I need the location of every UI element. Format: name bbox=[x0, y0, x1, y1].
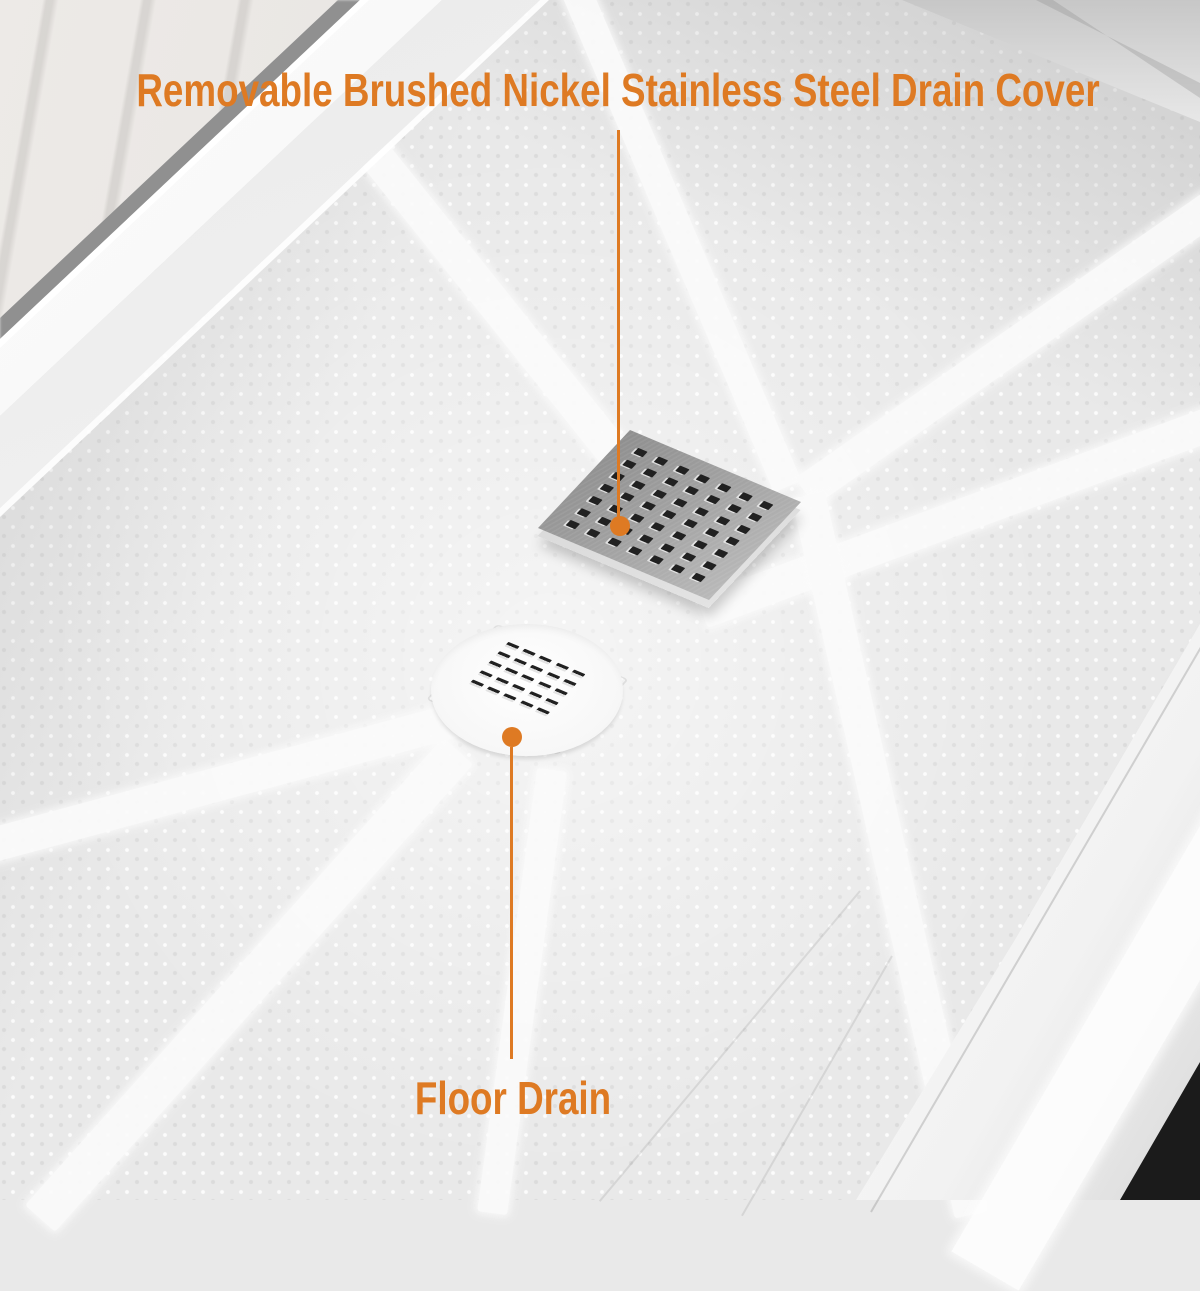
drain-hole bbox=[528, 665, 543, 674]
drain-hole bbox=[512, 658, 527, 667]
drain-hole bbox=[748, 513, 762, 522]
drain-hole bbox=[545, 672, 560, 681]
drain-hole bbox=[662, 510, 676, 519]
drain-hole bbox=[643, 469, 657, 478]
drain-hole bbox=[620, 493, 634, 502]
drain-hole bbox=[586, 529, 600, 538]
drain-hole bbox=[503, 668, 518, 677]
drain-hole bbox=[521, 649, 536, 658]
drain-hole bbox=[565, 520, 579, 529]
drain-hole bbox=[496, 651, 511, 660]
drain-hole bbox=[607, 538, 621, 547]
drain-hole bbox=[552, 688, 567, 697]
drain-hole bbox=[696, 474, 710, 483]
drain-cover-callout-label: Removable Brushed Nickel Stainless Steel… bbox=[136, 64, 1099, 117]
drain-hole bbox=[683, 519, 697, 528]
drain-hole bbox=[759, 501, 773, 510]
drain-hole bbox=[520, 675, 535, 684]
drain-hole bbox=[630, 514, 644, 523]
drain-hole bbox=[725, 537, 739, 546]
drain-hole bbox=[536, 681, 551, 690]
floor-drain-callout-dot bbox=[502, 727, 522, 747]
drain-cover-callout-dot bbox=[610, 516, 630, 536]
drain-hole bbox=[633, 448, 647, 457]
drain-hole bbox=[561, 679, 576, 688]
product-image: { "annotations": { "drain_cover_label": … bbox=[0, 0, 1200, 1200]
drain-hole bbox=[675, 465, 689, 474]
drain-cover-callout-line bbox=[617, 130, 620, 520]
drain-hole bbox=[577, 508, 591, 517]
drain-hole bbox=[695, 507, 709, 516]
drain-hole bbox=[502, 693, 517, 702]
drain-hole bbox=[727, 504, 741, 513]
drain-hole bbox=[588, 496, 602, 505]
drain-hole bbox=[504, 642, 519, 651]
drain-hole bbox=[685, 486, 699, 495]
drain-hole bbox=[649, 555, 663, 564]
drain-hole bbox=[654, 457, 668, 466]
drain-hole bbox=[704, 528, 718, 537]
drain-hole bbox=[544, 698, 559, 707]
drain-hole bbox=[641, 501, 655, 510]
drain-hole bbox=[737, 525, 751, 534]
drain-hole bbox=[494, 677, 509, 686]
drain-hole bbox=[716, 516, 730, 525]
drain-hole bbox=[535, 707, 550, 716]
drain-hole bbox=[599, 484, 613, 493]
drain-hole bbox=[651, 522, 665, 531]
drain-hole bbox=[670, 564, 684, 573]
drain-hole bbox=[511, 684, 526, 693]
drain-hole bbox=[570, 670, 585, 679]
drain-hole bbox=[487, 661, 502, 670]
drain-hole bbox=[622, 460, 636, 469]
drain-hole bbox=[632, 481, 646, 490]
drain-hole bbox=[518, 700, 533, 709]
drain-hole bbox=[682, 552, 696, 561]
drain-hole bbox=[527, 691, 542, 700]
drain-hole bbox=[738, 492, 752, 501]
drain-hole bbox=[714, 549, 728, 558]
drain-hole bbox=[653, 489, 667, 498]
drain-hole bbox=[537, 656, 552, 665]
drain-hole bbox=[469, 680, 484, 689]
floor-drain-callout-label: Floor Drain bbox=[415, 1072, 611, 1125]
drain-hole bbox=[693, 540, 707, 549]
floor-drain-callout-line bbox=[510, 747, 513, 1059]
drain-hole bbox=[661, 543, 675, 552]
drain-hole bbox=[706, 495, 720, 504]
drain-hole bbox=[664, 477, 678, 486]
drain-hole bbox=[554, 663, 569, 672]
drain-hole bbox=[672, 531, 686, 540]
drain-hole bbox=[640, 534, 654, 543]
drain-hole bbox=[478, 670, 493, 679]
drain-hole bbox=[485, 686, 500, 695]
drain-hole bbox=[674, 498, 688, 507]
drain-hole bbox=[691, 573, 705, 582]
drain-hole bbox=[703, 561, 717, 570]
drain-hole bbox=[628, 546, 642, 555]
drain-hole bbox=[717, 483, 731, 492]
